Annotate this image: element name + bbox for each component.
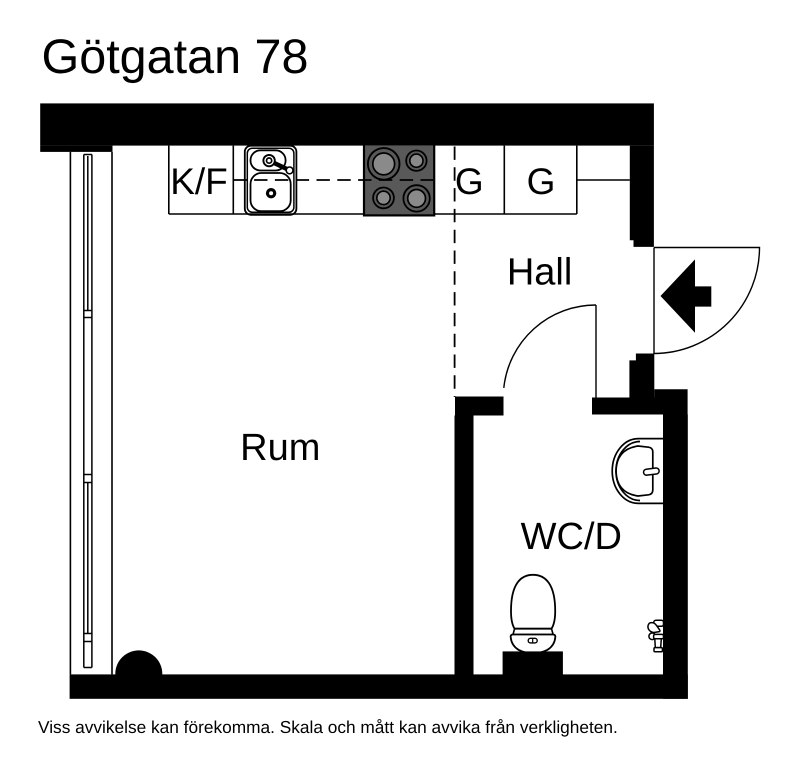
svg-text:G: G — [455, 161, 484, 202]
svg-text:Götgatan 78: Götgatan 78 — [42, 30, 309, 84]
svg-text:Rum: Rum — [240, 427, 320, 469]
svg-text:G: G — [527, 161, 556, 202]
svg-text:Viss avvikelse kan förekomma.: Viss avvikelse kan förekomma. Skala och … — [38, 717, 618, 737]
svg-text:K/F: K/F — [170, 161, 228, 202]
svg-text:Hall: Hall — [507, 252, 572, 294]
svg-text:WC/D: WC/D — [521, 516, 622, 558]
